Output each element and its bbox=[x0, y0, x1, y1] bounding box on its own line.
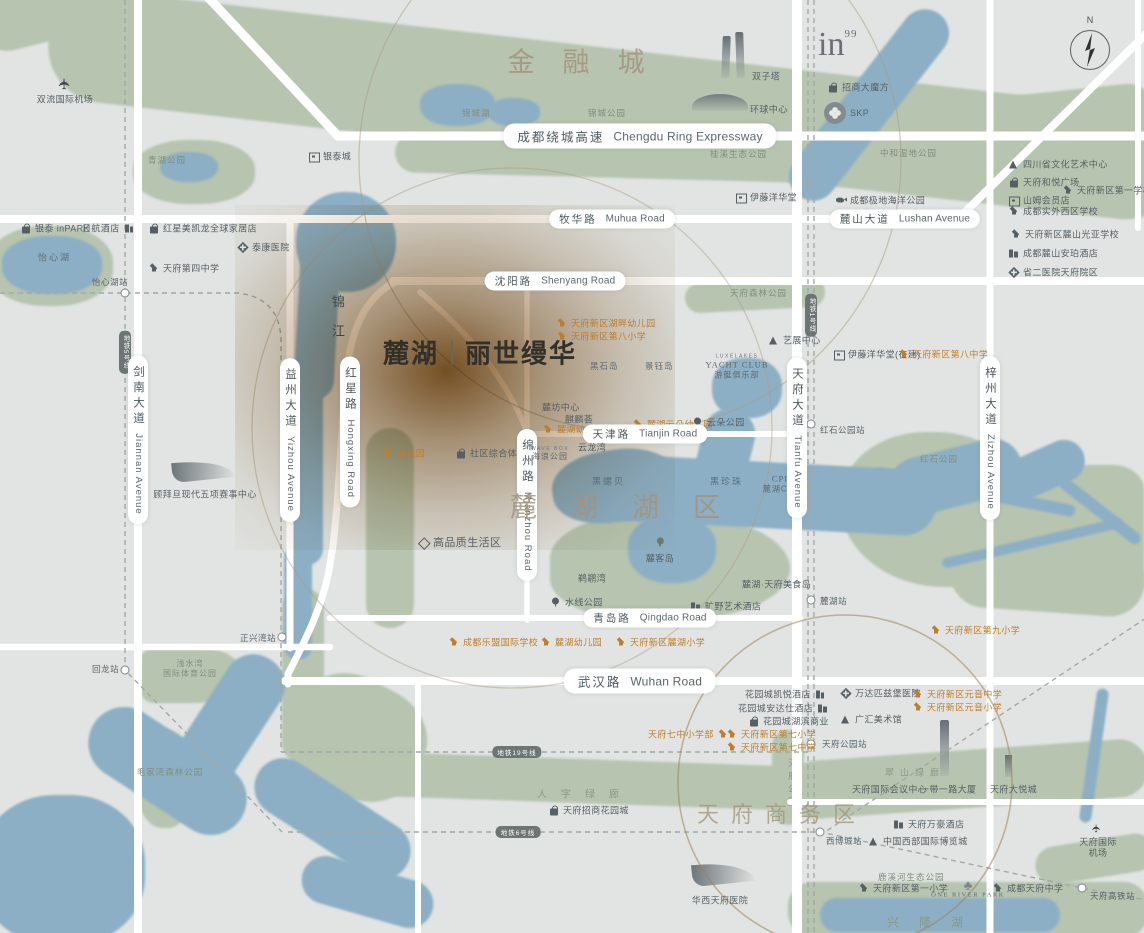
airport-tianfu: ✈天府国际机场 bbox=[1075, 817, 1121, 860]
district-tianfu-cbd: 天府商务区 bbox=[697, 797, 867, 829]
blk-luke-island-label: 麓客岛 bbox=[646, 553, 674, 564]
lake-jincheng: 锦城湖 bbox=[462, 107, 491, 119]
poi-hupan-kindergarten: 天府新区湖畔幼儿园 bbox=[556, 317, 656, 330]
poi-tianfu-middle-label: 成都天府中学 bbox=[1007, 882, 1063, 895]
store-icon bbox=[308, 151, 319, 162]
school-icon bbox=[615, 637, 626, 648]
poi-intl-conference: 天府国际会议中心 bbox=[852, 783, 927, 796]
poi-no9-primary: 天府新区第九小学 bbox=[930, 624, 1020, 637]
road-qingdao-en: Qingdao Road bbox=[640, 613, 707, 624]
road-qingdao-cn: 青岛路 bbox=[593, 611, 631, 626]
road-wuhan-cn: 武汉路 bbox=[578, 672, 622, 691]
landmark-icon bbox=[1008, 159, 1019, 170]
poi-redstar-macalline: 红星美凯龙全球家居店 bbox=[148, 222, 257, 235]
poi-western-expo-city: 中国西部国际博览城 bbox=[868, 835, 968, 848]
project-title: 麓湖丽世缦华 bbox=[383, 334, 577, 371]
road-muhua-cn: 牧华路 bbox=[559, 212, 597, 227]
poi-guangya-school: 天府新区麓山光亚学校 bbox=[1010, 228, 1119, 241]
shopping-bag-icon bbox=[1008, 177, 1019, 188]
poi-cm-gardencity-label: 天府招商花园城 bbox=[563, 804, 629, 817]
airport-shuangliu: ✈双流国际机场 bbox=[37, 74, 93, 105]
poi-guanghui-art-label: 广汇美术馆 bbox=[855, 713, 902, 726]
poi-luhu-kindergarten: 麓湖幼儿园 bbox=[540, 636, 602, 649]
poi-yuanyin-primary: 天府新区元音小学 bbox=[912, 701, 1002, 714]
stnl-tianfu-hsr: 天府高铁站 bbox=[1090, 890, 1135, 902]
poi-hotel-nikko-label: 日航酒店 bbox=[82, 222, 120, 235]
poi-cm-cube-label: 招商大魔方 bbox=[842, 81, 889, 94]
poi-yuanyin-middle-label: 天府新区元音中学 bbox=[927, 688, 1002, 701]
hospital-cross-icon bbox=[840, 688, 851, 699]
poi-kindergarten-w-label: 幼儿园 bbox=[397, 447, 425, 460]
lake-jincheng-water2 bbox=[488, 98, 540, 126]
compass-n-label: N bbox=[1087, 15, 1094, 25]
poi-community-complex: 社区综合体 bbox=[455, 447, 517, 460]
poi-guangya-school-label: 天府新区麓山光亚学校 bbox=[1025, 228, 1119, 241]
poi-yintai-city-label: 银泰城 bbox=[323, 150, 351, 163]
district-luhu-lake-label: 麓湖湖区 bbox=[510, 486, 754, 525]
road-wuhan-en: Wuhan Road bbox=[630, 674, 702, 688]
poi-marriott-label: 天府万豪酒店 bbox=[908, 818, 964, 831]
metro-line1-pill: 地铁1号线 bbox=[805, 294, 817, 337]
stnl-tianfupark-label: 天府公园站 bbox=[822, 738, 867, 750]
poi-joycity-label: 天府大悦城 bbox=[990, 783, 1037, 796]
poi-andaz-gardencity-label: 花园城安达仕酒店 bbox=[738, 702, 813, 715]
poi-prov-no2-hospital: 省二医院天府院区 bbox=[1008, 266, 1098, 279]
cbd-tower-icon-2 bbox=[1005, 755, 1012, 777]
road-wuhan: 武汉路Wuhan Road bbox=[564, 669, 716, 694]
school-icon bbox=[1008, 206, 1019, 217]
poi-skp: SKP bbox=[850, 108, 869, 118]
road-lushan-ave-cn: 麓山大道 bbox=[840, 212, 890, 227]
blk-yacht-club-line1: YACHT CLUB bbox=[706, 360, 769, 371]
poi-shiwai-school: 成都实外西区学校 bbox=[1008, 205, 1098, 218]
store-icon bbox=[833, 349, 844, 360]
stnl-huilong-label: 回龙站 bbox=[92, 663, 119, 675]
road-muhua-en: Muhua Road bbox=[606, 214, 665, 225]
venue-spacer bbox=[153, 473, 256, 489]
poi-tihuwan-label: 鹈鹕湾 bbox=[578, 572, 606, 585]
corridor-renzi-label: 人字绿廊 bbox=[537, 786, 633, 801]
stnl-xibocheng: 西博城站 bbox=[826, 835, 862, 847]
poi-guanghui-art: 广汇美术馆 bbox=[840, 713, 902, 726]
poi-yuanyin-middle: 天府新区元音中学 bbox=[912, 688, 1002, 701]
station-tianfu-hsr bbox=[1078, 884, 1087, 893]
whale-icon bbox=[835, 195, 846, 206]
water-heiluobei: 黑螺贝 bbox=[592, 475, 625, 488]
island-heishi-label: 黑石岛 bbox=[590, 360, 619, 372]
island-heishi: 黑石岛 bbox=[590, 360, 619, 372]
tree-icon bbox=[550, 597, 561, 608]
park-maojiawan: 毛家湾森林公园 bbox=[137, 766, 204, 778]
road-jiannan-ave-en: Jiannan Avenue bbox=[133, 433, 144, 514]
shopping-bag-icon bbox=[455, 448, 466, 459]
poi-andaz-gardencity: 花园城安达仕酒店 bbox=[738, 702, 828, 715]
shopping-bag-icon bbox=[20, 223, 31, 234]
school-icon bbox=[930, 625, 941, 636]
blk-wave-box: WAVE BOX海浪公园 bbox=[531, 446, 569, 462]
stnl-zhengxingwan-label: 正兴湾站 bbox=[240, 632, 276, 644]
stnl-yixinhu: 怡心湖站 bbox=[92, 276, 128, 288]
poi-community-complex-label: 社区综合体 bbox=[470, 447, 517, 460]
diamond-icon bbox=[418, 537, 429, 548]
road-ring-expressway-en: Chengdu Ring Expressway bbox=[613, 129, 762, 143]
poi-tianfu7-primary-br-label: 天府七中小学部 bbox=[648, 728, 714, 741]
road-zizhou-ave: 梓州大道Zizhou Avenue bbox=[980, 356, 1000, 520]
lake-yixinhu: 怡心湖 bbox=[38, 251, 71, 264]
park-qinghu: 青湖公园 bbox=[148, 154, 186, 166]
road-hongxing-en: Hongxing Road bbox=[345, 419, 356, 498]
school-icon bbox=[148, 263, 159, 274]
road-hongxing: 红星路Hongxing Road bbox=[340, 357, 360, 508]
poi-western-expo-city-label: 中国西部国际博览城 bbox=[883, 835, 968, 848]
island-jingyu: 景钰岛 bbox=[645, 360, 674, 372]
poi-art-expo-center: 艺展中心 bbox=[768, 334, 821, 347]
poi-quality-life-zone: 高品质生活区 bbox=[418, 534, 501, 550]
poi-polar-ocean-park-label: 成都极地海洋公园 bbox=[850, 194, 925, 207]
blk-yacht-club: LUXELAKESYACHT CLUB游艇俱乐部 bbox=[706, 354, 769, 381]
poi-sichuan-art-center: 四川省文化艺术中心 bbox=[1008, 158, 1108, 171]
district-financial-city-label: 金融城 bbox=[508, 41, 673, 80]
road-yizhou-ave-cn: 益州大道 bbox=[284, 368, 296, 430]
district-financial-city: 金融城 bbox=[508, 41, 673, 80]
station-yixinhu bbox=[121, 289, 130, 298]
skp-icon bbox=[824, 102, 846, 124]
stnl-luhu-label: 麓湖站 bbox=[820, 595, 847, 607]
lake-yixinhu-label: 怡心湖 bbox=[38, 251, 71, 264]
poi-luhu-primary-label: 天府新区麓湖小学 bbox=[630, 636, 705, 649]
poi-hyatt-gardencity: 花园城凯悦酒店 bbox=[745, 688, 826, 701]
poi-no7-primary-label: 天府新区第七小学 bbox=[741, 728, 816, 741]
road-jiannan-ave: 剑南大道Jiannan Avenue bbox=[128, 355, 148, 524]
poi-global-center: 环球中心 bbox=[750, 103, 788, 116]
poi-yunduo-park-label: 云朵公园 bbox=[707, 416, 745, 429]
building-icon bbox=[124, 223, 135, 234]
project-name-right: 丽世缦华 bbox=[465, 334, 577, 371]
poi-hyatt-gardencity-label: 花园城凯悦酒店 bbox=[745, 688, 811, 701]
poi-tianfu7-primary-br: 天府七中小学部 bbox=[648, 728, 729, 741]
school-icon bbox=[858, 883, 869, 894]
road-zizhou-ave-cn: 梓州大道 bbox=[984, 366, 996, 428]
poi-no8-primary-label: 天府新区第八小学 bbox=[571, 330, 646, 343]
poi-food-island: 麓湖·天府美食岛 bbox=[742, 578, 811, 591]
poi-ito-yokado-label: 伊藤洋华堂 bbox=[750, 191, 797, 204]
school-icon bbox=[992, 883, 1003, 894]
compass-needle-icon bbox=[1071, 31, 1109, 69]
poi-ito-yokado: 伊藤洋华堂 bbox=[735, 191, 797, 204]
compass: N bbox=[1070, 30, 1110, 70]
poi-yunlongwan: 云龙湾 bbox=[578, 441, 606, 454]
building-icon bbox=[817, 703, 828, 714]
poi-belt-road-tower: 一带一路大厦 bbox=[920, 783, 976, 796]
poi-amber-hotel-label: 成都麓山安珀酒店 bbox=[1023, 247, 1098, 260]
park-guixi: 桂溪生态公园 bbox=[710, 148, 767, 160]
poi-yuanyin-primary-label: 天府新区元音小学 bbox=[927, 701, 1002, 714]
hospital-cross-icon bbox=[1008, 267, 1019, 278]
poi-no7-middle: 天府新区第七中学 bbox=[726, 741, 816, 754]
road-ring-expressway-cn: 成都绕城高速 bbox=[517, 127, 604, 146]
lake-jincheng-label: 锦城湖 bbox=[462, 107, 491, 119]
project-title-divider bbox=[451, 340, 453, 364]
road-qingdao: 青岛路Qingdao Road bbox=[583, 609, 716, 628]
school-icon bbox=[726, 742, 737, 753]
park-tianfu-forest-label: 天府森林公园 bbox=[730, 287, 787, 299]
in99-logo: in99 bbox=[818, 28, 857, 62]
venue-huaxi-hospital: 华西天府医院 bbox=[692, 879, 748, 906]
stnl-zhengxingwan: 正兴湾站 bbox=[240, 632, 276, 644]
poi-shiwai-school-label: 成都实外西区学校 bbox=[1023, 205, 1098, 218]
park-tianfu-forest: 天府森林公园 bbox=[730, 287, 787, 299]
poi-taikang-hospital-label: 泰康医院 bbox=[252, 241, 290, 254]
poi-sichuan-art-center-label: 四川省文化艺术中心 bbox=[1023, 158, 1108, 171]
blk-yacht-club-line2: 游艇俱乐部 bbox=[706, 370, 769, 380]
landmark-icon bbox=[868, 836, 879, 847]
poi-lemeng-school: 成都乐盟国际学校 bbox=[448, 636, 538, 649]
station-hongshipark bbox=[807, 420, 816, 429]
school-icon bbox=[448, 637, 459, 648]
park-guixi-label: 桂溪生态公园 bbox=[710, 148, 767, 160]
road-tianfu-ave-cn: 天府大道 bbox=[791, 367, 803, 429]
hospital-cross-icon bbox=[237, 242, 248, 253]
poi-waterline-park-label: 水线公园 bbox=[565, 596, 603, 609]
map-canvas: in99 N 麓湖丽世缦华 地铁5号线地铁1号线地铁19号线地铁6号线✈双流国际… bbox=[0, 0, 1144, 933]
poi-tianfu-no1-school: 天府新区第一学校 bbox=[1062, 184, 1144, 197]
river-bend-3 bbox=[0, 795, 145, 933]
poi-tianfu-no4-school-label: 天府第四中学 bbox=[163, 262, 219, 275]
lake-xinglong: 兴隆湖 bbox=[887, 914, 983, 931]
blk-sports-park-line1: 国际体育公园 bbox=[163, 669, 217, 679]
school-icon bbox=[1010, 229, 1021, 240]
park-hongshi: 红石公园 bbox=[920, 453, 958, 465]
water-heiluobei-label: 黑螺贝 bbox=[592, 475, 625, 488]
venue-gubaidan: 顾拜旦现代五项赛事中心 bbox=[153, 473, 256, 500]
corridor-cuishan: 翠山绿廊 bbox=[885, 766, 945, 779]
poi-prov-no2-hospital-label: 省二医院天府院区 bbox=[1023, 266, 1098, 279]
blk-wave-box-line1: 海浪公园 bbox=[531, 452, 569, 462]
poi-polar-ocean-park: 成都极地海洋公园 bbox=[835, 194, 925, 207]
poi-cm-cube: 招商大魔方 bbox=[827, 81, 889, 94]
road-lushan-ave: 麓山大道Lushan Avenue bbox=[830, 210, 980, 229]
river-jinjiang: 锦江 bbox=[328, 295, 347, 353]
venue-spacer bbox=[692, 879, 748, 895]
stnl-tianfupark: 天府公园站 bbox=[822, 738, 867, 750]
building-icon bbox=[1008, 248, 1019, 259]
poi-waterline-park: 水线公园 bbox=[550, 596, 603, 609]
venue-huaxi-hospital-label: 华西天府医院 bbox=[692, 895, 748, 906]
corridor-cuishan-label: 翠山绿廊 bbox=[885, 766, 945, 779]
poi-no8-middle-label: 天府新区第八中学 bbox=[913, 348, 988, 361]
stnl-hongshipark: 红石公园站 bbox=[820, 424, 865, 436]
poi-gardencity-biz-label: 花园城湖滨商业 bbox=[763, 715, 829, 728]
landmark-icon bbox=[840, 714, 851, 725]
poi-yintai-inpark: 银泰 inPARK bbox=[20, 222, 90, 235]
road-tianfu-ave: 天府大道Tianfu Avenue bbox=[787, 357, 807, 518]
road-tianjin-en: Tianjin Road bbox=[639, 429, 697, 440]
district-tianfu-cbd-label: 天府商务区 bbox=[697, 797, 867, 829]
shopping-bag-icon bbox=[748, 716, 759, 727]
poi-marriott: 天府万豪酒店 bbox=[893, 818, 964, 831]
building-icon bbox=[815, 689, 826, 700]
stnl-tianfu-hsr-label: 天府高铁站 bbox=[1090, 890, 1135, 902]
poi-no7-primary: 天府新区第七小学 bbox=[726, 728, 816, 741]
road-zizhou-ave-en: Zizhou Avenue bbox=[985, 434, 996, 510]
park-hongshi-label: 红石公园 bbox=[920, 453, 958, 465]
school-icon bbox=[382, 448, 393, 459]
road-lushan-ave-en: Lushan Avenue bbox=[899, 214, 970, 225]
poi-skp-label: SKP bbox=[850, 108, 869, 118]
school-icon bbox=[898, 349, 909, 360]
poi-no8-middle: 天府新区第八中学 bbox=[898, 348, 988, 361]
poi-wanda-hospital: 万达匹兹堡医院 bbox=[840, 687, 921, 700]
poi-gardencity-biz: 花园城湖滨商业 bbox=[748, 715, 829, 728]
poi-taikang-hospital: 泰康医院 bbox=[237, 241, 290, 254]
poi-lemeng-school-label: 成都乐盟国际学校 bbox=[463, 636, 538, 649]
poi-tianfu-no1-school-label: 天府新区第一学校 bbox=[1077, 184, 1144, 197]
poi-hotel-nikko: 日航酒店 bbox=[82, 222, 135, 235]
station-zhengxingwan bbox=[278, 633, 287, 642]
poi-tianfu-middle: 成都天府中学 bbox=[992, 882, 1063, 895]
river-jinjiang-3 bbox=[284, 545, 312, 660]
road-muhua: 牧华路Muhua Road bbox=[549, 210, 675, 229]
corridor-renzi: 人字绿廊 bbox=[537, 786, 633, 801]
poi-wanda-hospital-label: 万达匹兹堡医院 bbox=[855, 687, 921, 700]
poi-kindergarten-w: 幼儿园 bbox=[382, 447, 425, 460]
poi-tianfu-no4-school: 天府第四中学 bbox=[148, 262, 219, 275]
road-hongxing-cn: 红星路 bbox=[344, 367, 356, 414]
poi-art-expo-center-label: 艺展中心 bbox=[783, 334, 821, 347]
metro-line6-pill: 地铁6号线 bbox=[496, 826, 541, 838]
venue-gubaidan-label: 顾拜旦现代五项赛事中心 bbox=[153, 489, 256, 500]
school-icon bbox=[540, 637, 551, 648]
school-icon bbox=[726, 729, 737, 740]
poi-luhu-kindergarten-label: 麓湖幼儿园 bbox=[555, 636, 602, 649]
stnl-hongshipark-label: 红石公园站 bbox=[820, 424, 865, 436]
park-jincheng: 锦城公园 bbox=[588, 107, 626, 119]
district-luhu-lake: 麓湖湖区 bbox=[510, 486, 754, 525]
road-tianfu-ave-en: Tianfu Avenue bbox=[792, 435, 803, 508]
park-shape-luhu-e bbox=[948, 533, 1144, 618]
road-shenyang-en: Shenyang Road bbox=[541, 276, 615, 287]
road-tianjin-cn: 天津路 bbox=[593, 427, 631, 442]
twin-tower-icon-1 bbox=[721, 36, 730, 78]
poi-quality-life-zone-label: 高品质生活区 bbox=[433, 534, 501, 550]
road-shenyang: 沈阳路Shenyang Road bbox=[485, 272, 626, 291]
project-name-left: 麓湖 bbox=[383, 334, 439, 371]
airplane-icon: ✈ bbox=[57, 78, 72, 91]
poi-intl-conference-label: 天府国际会议中心 bbox=[852, 783, 927, 796]
road-yizhou-ave-en: Yizhou Avenue bbox=[285, 436, 296, 512]
poi-luhu-primary: 天府新区麓湖小学 bbox=[615, 636, 705, 649]
school-icon bbox=[912, 702, 923, 713]
poi-redstar-macalline-label: 红星美凯龙全球家居店 bbox=[163, 222, 257, 235]
poi-global-center-label: 环球中心 bbox=[750, 103, 788, 116]
shopping-bag-icon bbox=[148, 223, 159, 234]
poi-joycity: 天府大悦城 bbox=[990, 783, 1037, 796]
poi-no7-middle-label: 天府新区第七中学 bbox=[741, 741, 816, 754]
water-heizhenzhu-label: 黑珍珠 bbox=[710, 475, 743, 488]
school-icon bbox=[542, 424, 553, 435]
shopping-bag-icon bbox=[827, 82, 838, 93]
blk-sports-park: 浅水湾国际体育公园 bbox=[163, 659, 217, 679]
shopping-bag-icon bbox=[548, 805, 559, 816]
poi-cm-gardencity: 天府招商花园城 bbox=[548, 804, 629, 817]
airport-tianfu-label: 天府国际机场 bbox=[1075, 837, 1121, 860]
tree-icon bbox=[654, 536, 665, 547]
poi-hupan-kindergarten-label: 天府新区湖畔幼儿园 bbox=[571, 317, 656, 330]
lake-jincheng-water1 bbox=[420, 84, 495, 126]
poi-twin-towers: 双子塔 bbox=[752, 70, 780, 83]
poi-yintai-city: 银泰城 bbox=[308, 150, 351, 163]
park-jincheng-label: 锦城公园 bbox=[588, 107, 626, 119]
station-huilong bbox=[121, 666, 130, 675]
metro-line19-pill: 地铁19号线 bbox=[492, 746, 541, 758]
road-shenyang-cn: 沈阳路 bbox=[495, 274, 533, 289]
river-jinjiang-label: 锦江 bbox=[330, 295, 345, 353]
water-heizhenzhu: 黑珍珠 bbox=[710, 475, 743, 488]
poi-food-island-label: 麓湖·天府美食岛 bbox=[742, 578, 811, 591]
poi-tihuwan: 鹈鹕湾 bbox=[578, 572, 606, 585]
school-icon bbox=[912, 689, 923, 700]
station-luhu bbox=[807, 596, 816, 605]
building-icon bbox=[893, 819, 904, 830]
road-ring-expressway: 成都绕城高速Chengdu Ring Expressway bbox=[503, 124, 776, 149]
stnl-yixinhu-label: 怡心湖站 bbox=[92, 276, 128, 288]
poi-twin-towers-label: 双子塔 bbox=[752, 70, 780, 83]
store-icon bbox=[735, 192, 746, 203]
twin-tower-icon-2 bbox=[735, 32, 745, 78]
road-yizhou-ave: 益州大道Yizhou Avenue bbox=[280, 358, 300, 522]
landmark-icon bbox=[768, 335, 779, 346]
lake-xinglong-label: 兴隆湖 bbox=[887, 914, 983, 931]
blk-sports-park-line0: 浅水湾 bbox=[163, 659, 217, 669]
park-maojiawan-label: 毛家湾森林公园 bbox=[137, 766, 204, 778]
airport-shuangliu-label: 双流国际机场 bbox=[37, 94, 93, 105]
poi-amber-hotel: 成都麓山安珀酒店 bbox=[1008, 247, 1098, 260]
park-zhonghe-wetland: 中和湿地公园 bbox=[880, 147, 937, 159]
island-jingyu-label: 景钰岛 bbox=[645, 360, 674, 372]
park-zhonghe-wetland-label: 中和湿地公园 bbox=[880, 147, 937, 159]
airplane-icon: ✈ bbox=[1093, 824, 1104, 833]
school-icon bbox=[556, 318, 567, 329]
road-jiannan-ave-cn: 剑南大道 bbox=[132, 365, 144, 427]
park-qinghu-label: 青湖公园 bbox=[148, 154, 186, 166]
lake-yixin-water bbox=[2, 236, 102, 294]
blk-luke-island: 麓客岛 bbox=[646, 533, 674, 564]
stnl-luhu: 麓湖站 bbox=[820, 595, 847, 607]
stnl-huilong: 回龙站 bbox=[92, 663, 119, 675]
stnl-xibocheng-label: 西博城站 bbox=[826, 835, 862, 847]
poi-no9-primary-label: 天府新区第九小学 bbox=[945, 624, 1020, 637]
poi-belt-road-tower-label: 一带一路大厦 bbox=[920, 783, 976, 796]
poi-yunlongwan-label: 云龙湾 bbox=[578, 441, 606, 454]
